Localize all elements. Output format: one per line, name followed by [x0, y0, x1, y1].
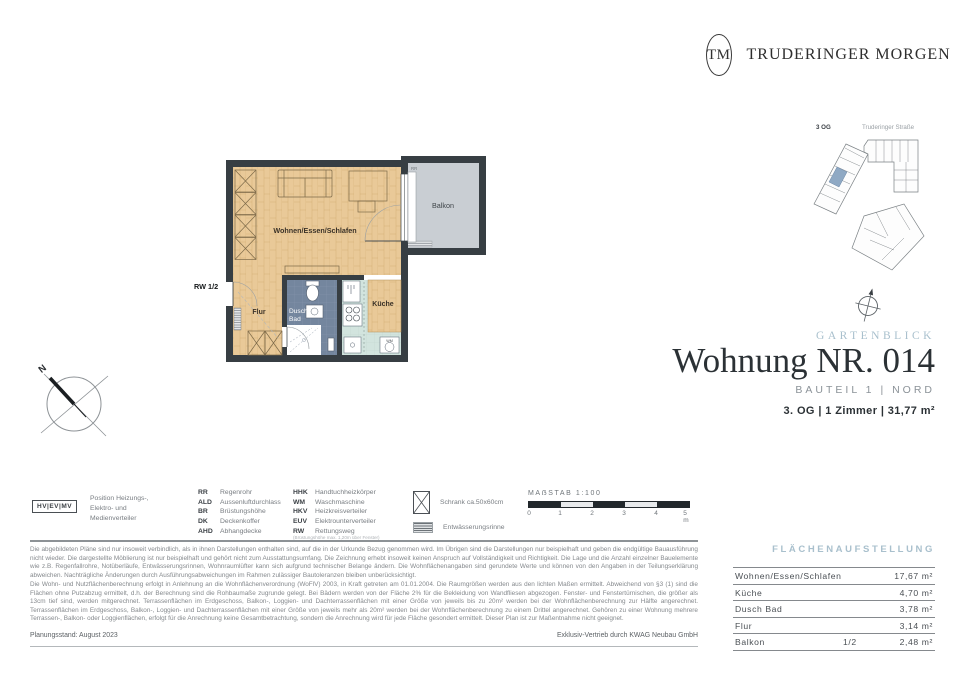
building-outlines — [814, 140, 924, 270]
apartment-title: Wohnung NR. 014 — [595, 343, 935, 380]
building-section: BAUTEIL 1 | NORD — [595, 384, 935, 396]
compass-rose: N — [26, 354, 118, 446]
table-row: Flur 3,14 m² — [733, 618, 935, 635]
brand-header: TM TRUDERINGER MORGEN — [706, 30, 946, 80]
wardrobe-symbol-label: Schrank ca.50x60cm — [440, 499, 503, 506]
area-table-heading: FLÄCHENAUFSTELLUNG — [733, 544, 935, 555]
escape-route-label: RW 1/2 — [194, 282, 218, 291]
brand-name: TRUDERINGER MORGEN — [747, 46, 951, 64]
legend-abbreviations-col1: RRRegenrohr ALDAussenluftdurchlass BRBrü… — [198, 489, 281, 537]
brand-initials: TM — [707, 47, 731, 64]
compass-north-label: N — [37, 363, 49, 376]
brand-logo-icon: TM — [706, 34, 732, 76]
area-table-rows: Wohnen/Essen/Schlafen 17,67 m² Küche 4,7… — [733, 567, 935, 651]
legend-row: RWRettungsweg — [293, 528, 380, 535]
disclaimer-paragraph-2: Die Wohn- und Nutzflächenberechnung erfo… — [30, 581, 698, 624]
drain-symbol-label: Entwässerungsrinne — [443, 524, 505, 531]
floor-plan: Wohnen/Essen/Schlafen Flur Dusch Bad Küc… — [192, 142, 490, 378]
bath-label-line1: Dusch — [289, 308, 308, 315]
scale-ticks: 0 1 2 3 4 5 m — [528, 510, 690, 520]
title-block: GARTENBLICK Wohnung NR. 014 BAUTEIL 1 | … — [595, 330, 935, 417]
table-row: Balkon 1/2 2,48 m² — [733, 634, 935, 651]
area-table: FLÄCHENAUFSTELLUNG Wohnen/Essen/Schlafen… — [733, 544, 935, 651]
site-plan-street-label: Truderinger Straße — [862, 124, 915, 131]
scale-block: MAẞSTAB 1:100 0 1 2 3 4 5 m — [528, 490, 690, 520]
scale-title: MAẞSTAB 1:100 — [528, 490, 690, 497]
living-room-floor — [233, 167, 401, 275]
kitchen-label: Küche — [372, 301, 394, 308]
footer: Planungsstand: August 2023 Exklusiv-Vert… — [30, 632, 698, 639]
sales-contact: Exklusiv-Vertrieb durch KWAG Neubau GmbH — [557, 632, 698, 639]
balcony-label: Balkon — [432, 201, 454, 210]
table-row: Küche 4,70 m² — [733, 585, 935, 602]
legend-row: HKVHeizkreisverteiler — [293, 508, 380, 515]
drain-symbol-icon — [413, 522, 433, 533]
legend-row: Entwässerungsrinne — [413, 522, 505, 533]
legend-row: RRRegenrohr — [198, 489, 281, 496]
footer-line — [30, 646, 698, 647]
bath-label-line2: Bad — [289, 316, 301, 323]
hall-label: Flur — [252, 309, 265, 316]
apartment-details: 3. OG | 1 Zimmer | 31,77 m² — [595, 405, 935, 417]
planning-status: Planungsstand: August 2023 — [30, 632, 118, 639]
distributor-symbol: HV|EV|MV — [32, 500, 77, 513]
legend-row: Schrank ca.50x60cm — [413, 491, 505, 514]
rain-pipe-label: RR — [411, 166, 417, 171]
disclaimer-paragraph-1: Die abgebildeten Pläne sind nur insoweit… — [30, 546, 698, 580]
legend-row: HHKHandtuchheizkörper — [293, 489, 380, 496]
distributor-symbol-label: HV|EV|MV — [37, 503, 72, 510]
legend-row: WMWaschmaschine — [293, 499, 380, 506]
site-plan-floor-label: 3 OG — [816, 124, 831, 131]
table-row: Wohnen/Essen/Schlafen 17,67 m² — [733, 568, 935, 585]
living-room-label: Wohnen/Essen/Schlafen — [273, 226, 356, 235]
legend-row: AHDAbhangdecke — [198, 528, 281, 535]
legend-row: ALDAussenluftdurchlass — [198, 499, 281, 506]
legend-abbreviations-col2: HHKHandtuchheizkörper WMWaschmaschine HK… — [293, 489, 380, 540]
site-plan: 3 OG Truderinger Straße — [806, 118, 951, 286]
legend-row: BRBrüstungshöhe — [198, 508, 281, 515]
legend-symbols: Schrank ca.50x60cm Entwässerungsrinne — [413, 491, 505, 541]
legend-row: DKDeckenkoffer — [198, 518, 281, 525]
distributor-description: Position Heizungs-, Elektro- und Medienv… — [90, 494, 170, 525]
divider-line — [30, 540, 698, 542]
scale-bar — [528, 501, 690, 508]
north-symbol-icon — [850, 286, 886, 322]
legend-row: EUVElektrounterverteiler — [293, 518, 380, 525]
wardrobe-symbol-icon — [413, 491, 430, 514]
table-row: Dusch Bad 3,78 m² — [733, 601, 935, 618]
washing-machine-label: WM — [386, 339, 393, 343]
